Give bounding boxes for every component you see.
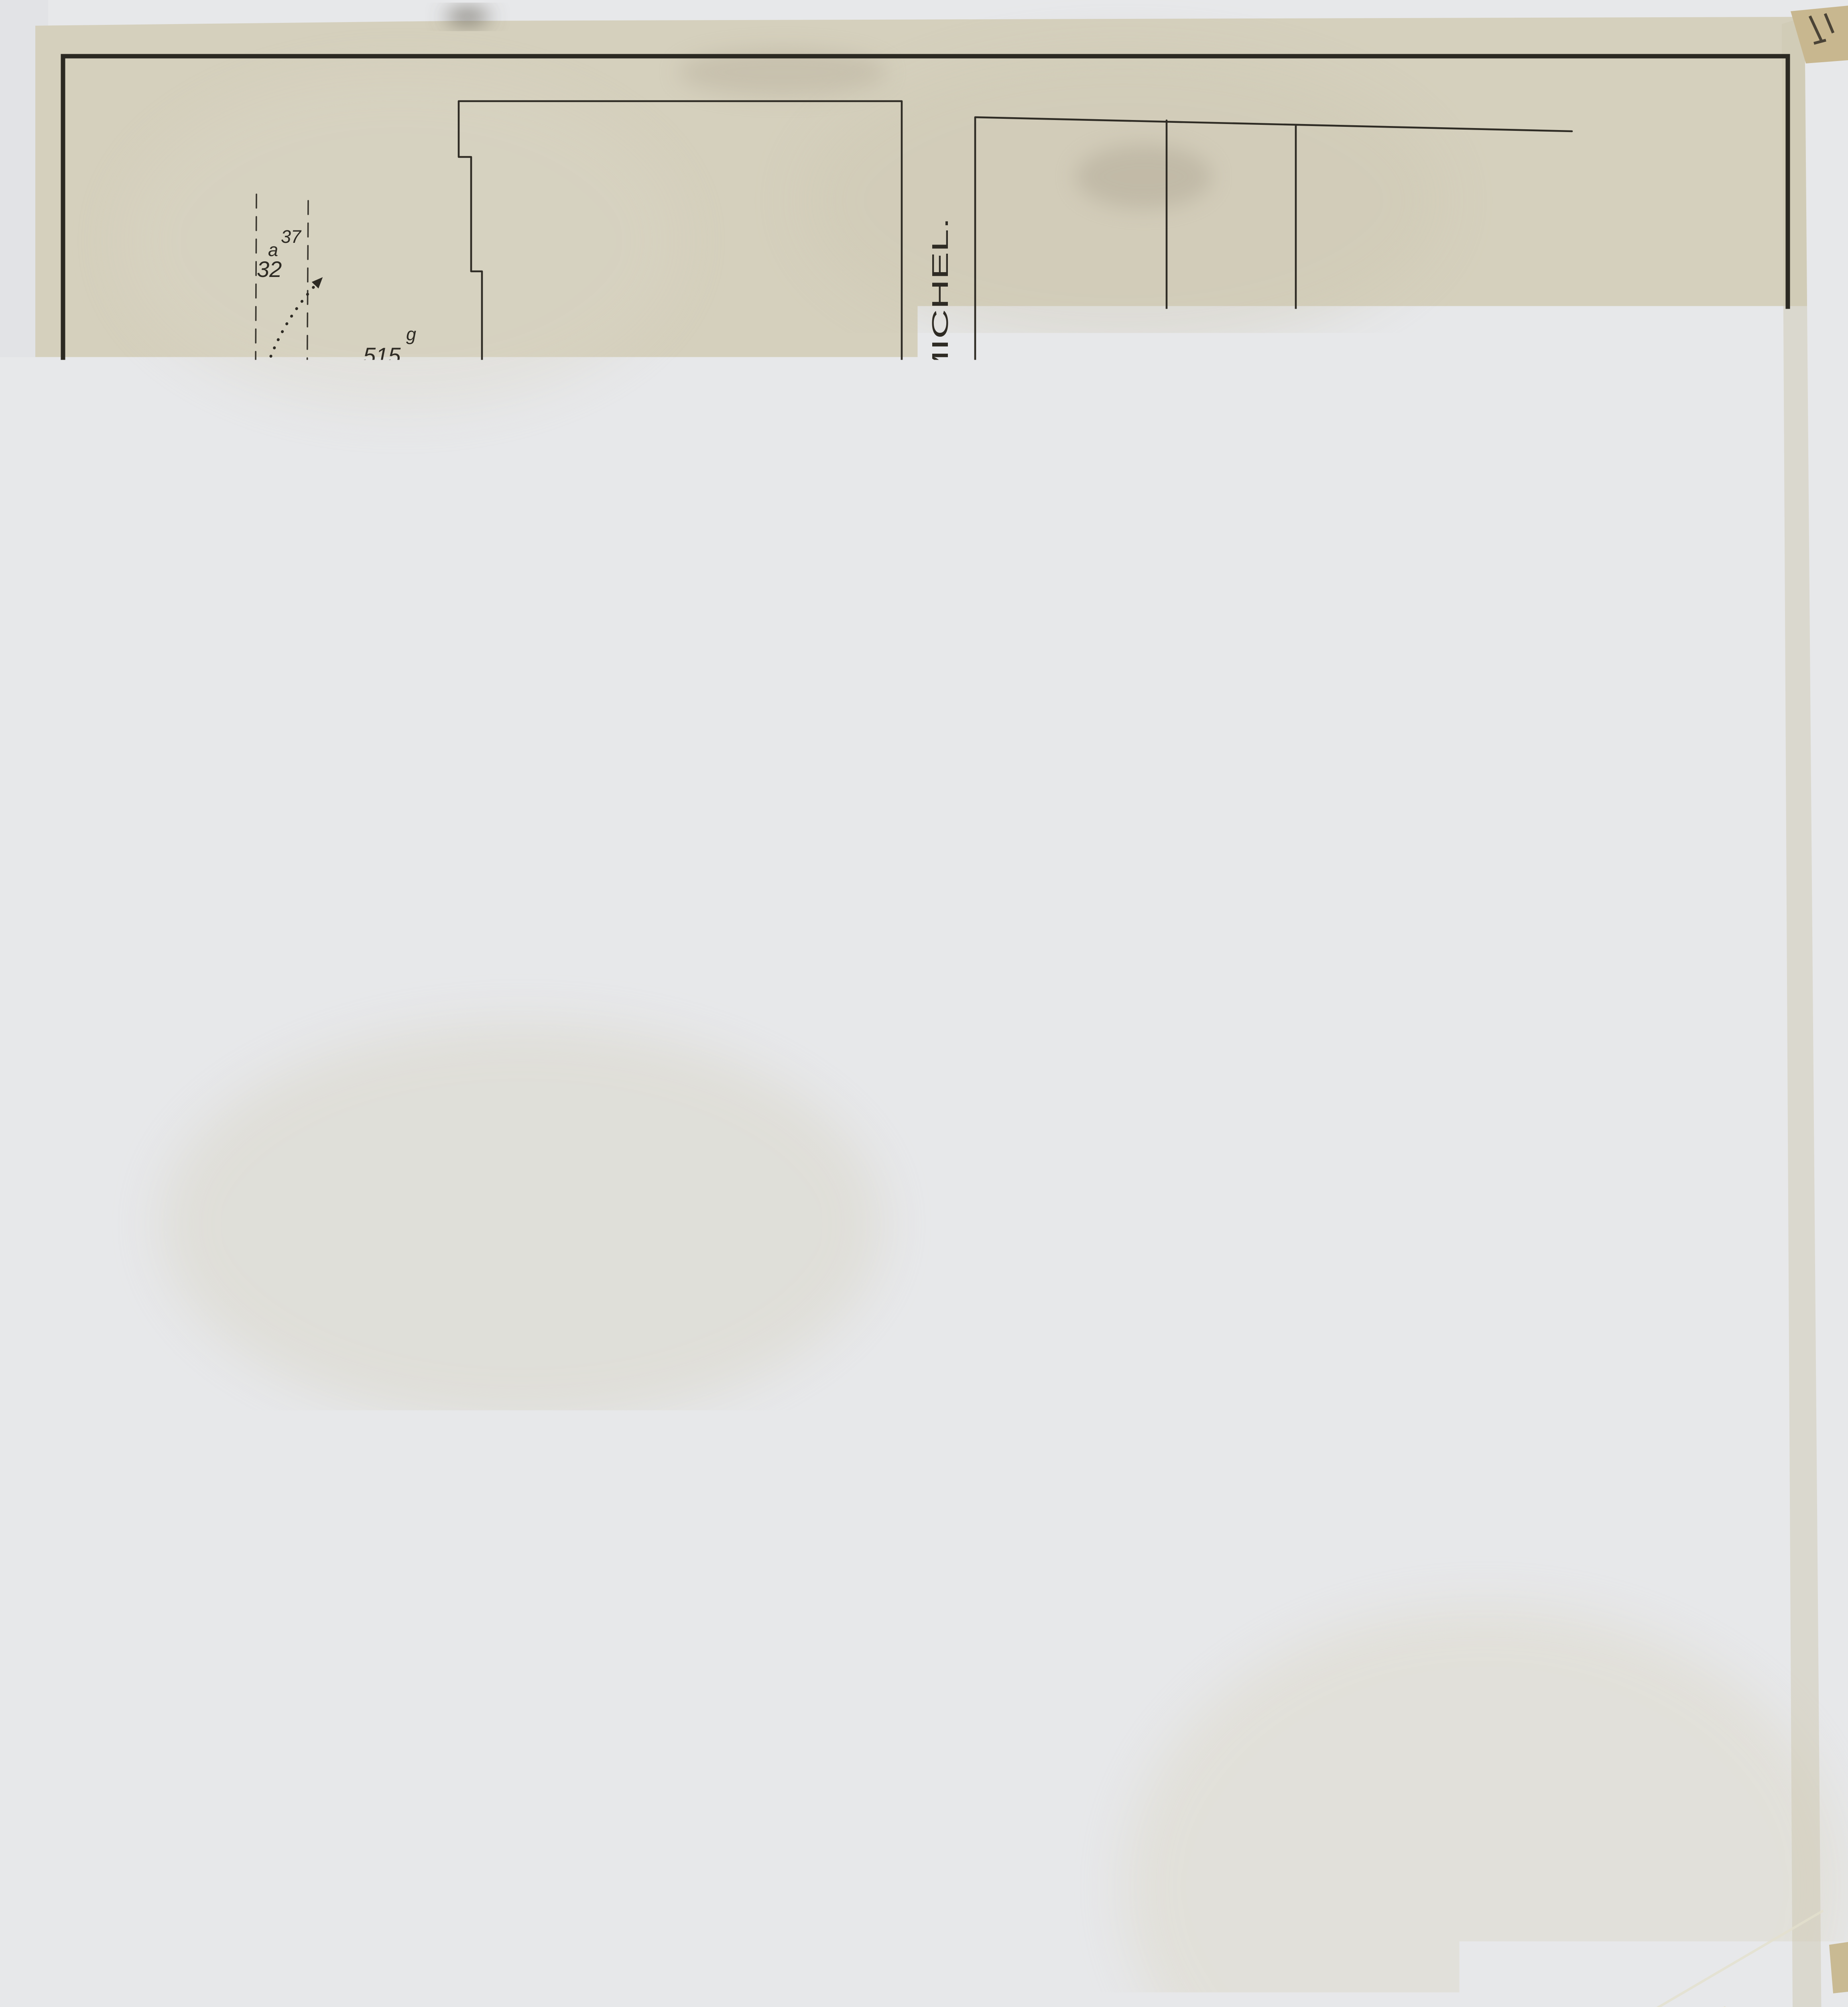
svg-text:3: 3 [1487,1054,1498,1076]
svg-text:14: 14 [817,1050,838,1072]
svg-text:PERSIL.: PERSIL. [925,1167,953,1324]
svg-text:5: 5 [1561,1055,1572,1077]
svg-text:775: 775 [441,1140,478,1165]
svg-text:g: g [406,324,416,344]
svg-text:832: 832 [353,1141,390,1166]
svg-text:808: 808 [425,826,462,852]
svg-text:15: 15 [1079,1057,1100,1078]
svg-text:1: 1 [1433,1056,1443,1078]
svg-text:RUE ST. MICHEL.: RUE ST. MICHEL. [927,218,953,554]
svg-text:c: c [707,1094,716,1114]
svg-text:776: 776 [559,1136,596,1162]
svg-text:1: 1 [1437,674,1448,695]
svg-text:37: 37 [440,1065,461,1086]
svg-text:698: 698 [1539,1095,1577,1120]
svg-text:RUE DES ŒILLETS.: RUE DES ŒILLETS. [1418,1032,1650,1067]
svg-text:788: 788 [1417,976,1454,1001]
svg-text:m: m [339,729,354,750]
svg-text:2: 2 [1441,1011,1452,1032]
svg-text:793: 793 [1468,590,1505,616]
svg-text:794: 794 [1405,592,1443,617]
svg-text:d: d [457,932,468,952]
svg-text:9: 9 [502,1063,512,1085]
svg-text:DU: DU [921,1362,949,1399]
svg-text:4: 4 [533,654,543,675]
svg-text:12: 12 [700,1055,721,1077]
svg-text:1: 1 [799,652,810,674]
svg-text:PROVINCE DE BRABANT: PROVINCE DE BRABANT [234,1584,933,1651]
svg-text:786: 786 [1412,1095,1450,1120]
svg-text:b: b [1144,564,1154,584]
svg-text:23: 23 [1124,650,1145,671]
svg-text:11: 11 [636,1058,656,1080]
svg-text:19: 19 [1356,903,1376,924]
svg-text:17: 17 [1309,1054,1330,1075]
svg-text:10: 10 [569,1061,590,1082]
svg-text:34: 34 [955,445,976,466]
svg-text:795: 795 [1322,586,1360,611]
svg-text:21: 21 [1337,650,1358,671]
svg-text:d: d [1245,1087,1256,1107]
svg-text:a: a [1458,795,1468,816]
svg-text:783: 783 [1204,1105,1241,1130]
svg-text:41: 41 [908,570,929,591]
svg-text:801: 801 [851,588,888,613]
svg-text:2e DIV. SECTION 5: 2e DIV. SECTION 5 [127,1970,486,2007]
svg-text:514: 514 [295,737,332,763]
svg-text:a: a [1458,878,1468,898]
svg-text:796: 796 [1193,590,1230,616]
svg-text:RUE D'ARGENT.: RUE D'ARGENT. [185,1046,418,1080]
svg-text:785: 785 [1353,1096,1391,1122]
svg-text:31: 31 [257,1072,278,1093]
svg-text:a: a [1585,557,1595,577]
svg-text:6: 6 [1555,633,1565,654]
svg-text:b: b [1582,1075,1592,1095]
svg-text:791: 791 [1409,710,1447,735]
svg-text:775: 775 [499,1138,537,1163]
svg-text:h: h [942,1481,952,1501]
svg-text:d: d [836,1090,846,1110]
svg-text:b: b [1071,570,1081,591]
svg-text:a: a [268,240,278,260]
svg-text:8: 8 [506,915,517,936]
svg-text:515: 515 [363,343,401,368]
svg-text:b: b [767,1091,777,1111]
svg-text:a: a [599,1121,609,1142]
svg-text:802: 802 [786,589,823,614]
svg-text:37: 37 [281,226,302,247]
svg-text:b: b [480,1126,490,1146]
svg-text:804: 804 [634,592,671,617]
svg-text:792: 792 [1537,589,1574,614]
svg-text:b: b [573,566,583,587]
svg-text:4: 4 [962,1189,973,1210]
svg-text:VILLE DE BRUXELLES: VILLE DE BRUXELLES [141,1669,945,1765]
svg-text:b: b [1036,1083,1046,1104]
svg-text:a: a [470,731,480,751]
svg-text:803: 803 [726,589,764,614]
svg-text:16: 16 [1222,1055,1243,1077]
svg-text:b: b [817,558,827,579]
svg-text:4: 4 [1480,640,1490,662]
svg-text:2: 2 [742,654,752,675]
svg-text:36: 36 [406,1043,427,1065]
svg-text:a: a [758,569,768,589]
svg-text:807: 807 [431,749,470,775]
svg-text:CLASSEMENT DE LA PLACE DES MAR: CLASSEMENT DE LA PLACE DES MARTYRS [135,1831,985,1879]
svg-text:22: 22 [1213,651,1234,672]
svg-text:a: a [1370,556,1380,576]
svg-text:777: 777 [616,1108,654,1134]
svg-text:a: a [1446,561,1456,581]
svg-text:762: 762 [902,1492,939,1517]
svg-text:18: 18 [1361,1055,1382,1077]
svg-text:33: 33 [360,1069,380,1090]
svg-text:20: 20 [1356,820,1377,841]
svg-text:a: a [1461,964,1471,984]
svg-text:b: b [1136,1084,1147,1105]
svg-text:b: b [687,570,697,591]
svg-text:a: a [885,561,895,581]
svg-text:3: 3 [660,654,671,675]
svg-text:2: 2 [962,1164,972,1185]
svg-text:779: 779 [731,1108,768,1134]
svg-text:b: b [1498,557,1508,577]
svg-text:798: 798 [1016,594,1053,619]
svg-text:15: 15 [1120,1057,1141,1078]
svg-text:778: 778 [671,1108,708,1134]
svg-text:805: 805 [518,590,555,616]
svg-text:810: 810 [414,951,451,976]
svg-text:27: 27 [1628,1136,1649,1158]
svg-text:7: 7 [506,822,516,844]
svg-text:787: 787 [1476,1095,1514,1120]
svg-text:b: b [1448,1076,1458,1097]
svg-text:13: 13 [760,1053,781,1074]
svg-text:6: 6 [494,745,505,767]
svg-text:36: 36 [956,570,977,591]
svg-text:c: c [539,1123,548,1143]
svg-text:PLACE DES MARTYRS.: PLACE DES MARTYRS. [700,709,1193,751]
svg-text:780: 780 [799,1108,836,1134]
svg-text:761: 761 [995,1104,1033,1130]
svg-text:797: 797 [1111,586,1149,612]
svg-text:789: 789 [1416,890,1453,915]
svg-text:b: b [901,1085,911,1105]
svg-text:b: b [401,1127,411,1147]
svg-text:32: 32 [257,256,282,282]
svg-text:RUE DES ROSES.: RUE DES ROSES. [1378,655,1605,690]
svg-text:790: 790 [1417,807,1454,833]
svg-text:h: h [1321,1088,1331,1109]
svg-text:1: 1 [915,1180,925,1201]
svg-text:2: 2 [1423,643,1433,664]
svg-text:781: 781 [1094,1107,1131,1132]
svg-text:784: 784 [1284,1099,1321,1125]
svg-text:760: 760 [864,1102,901,1127]
